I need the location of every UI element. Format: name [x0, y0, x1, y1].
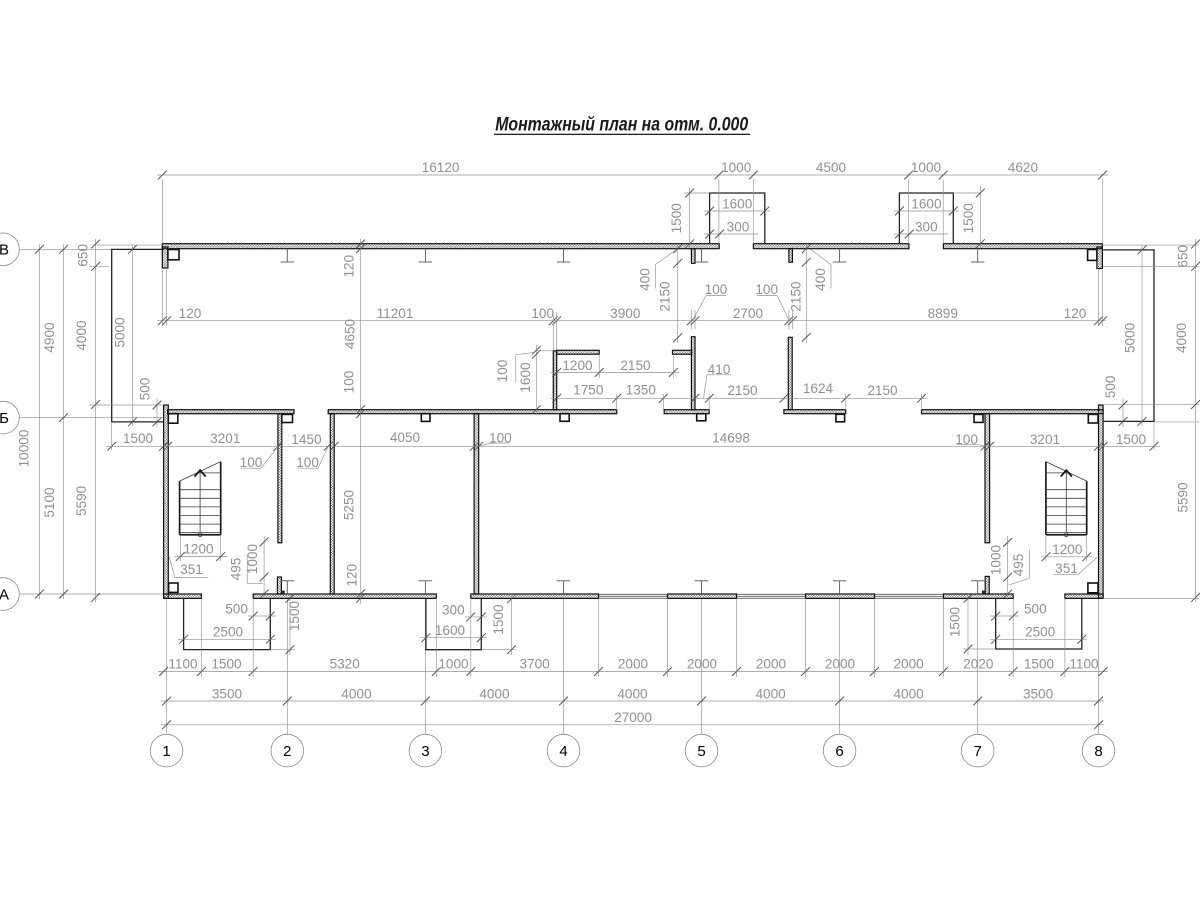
svg-text:1500: 1500	[491, 604, 506, 635]
svg-text:2500: 2500	[1025, 625, 1056, 640]
svg-text:500: 500	[1024, 602, 1047, 617]
svg-text:4050: 4050	[390, 430, 421, 445]
svg-text:4000: 4000	[74, 320, 89, 351]
svg-text:500: 500	[1103, 375, 1118, 398]
svg-text:5100: 5100	[42, 487, 57, 518]
svg-text:1750: 1750	[573, 383, 604, 398]
svg-text:3201: 3201	[1030, 432, 1060, 447]
svg-text:4000: 4000	[617, 686, 648, 701]
svg-text:100: 100	[296, 455, 319, 470]
svg-text:4000: 4000	[1174, 322, 1189, 353]
svg-text:3900: 3900	[610, 306, 641, 321]
svg-text:351: 351	[180, 562, 203, 577]
svg-text:120: 120	[1064, 306, 1087, 321]
svg-text:1200: 1200	[183, 542, 214, 557]
svg-text:1000: 1000	[721, 160, 752, 175]
svg-text:2150: 2150	[867, 383, 898, 398]
svg-text:1500: 1500	[1116, 432, 1147, 447]
svg-text:1000: 1000	[438, 657, 469, 672]
svg-text:2150: 2150	[620, 358, 651, 373]
svg-text:5000: 5000	[112, 317, 127, 348]
svg-text:2000: 2000	[893, 657, 924, 672]
svg-text:300: 300	[442, 603, 465, 618]
svg-text:351: 351	[1055, 561, 1078, 576]
svg-text:1600: 1600	[435, 623, 466, 638]
svg-text:3500: 3500	[1023, 686, 1054, 701]
svg-text:1500: 1500	[1024, 657, 1055, 672]
svg-text:1624: 1624	[803, 381, 834, 396]
svg-text:7: 7	[974, 743, 982, 760]
svg-text:А: А	[0, 586, 9, 603]
svg-text:1500: 1500	[123, 431, 154, 446]
svg-text:5000: 5000	[1122, 322, 1137, 353]
svg-text:Монтажный план на отм. 0.000: Монтажный план на отм. 0.000	[495, 115, 748, 136]
svg-text:100: 100	[531, 306, 554, 321]
svg-text:8: 8	[1094, 743, 1102, 760]
svg-text:1000: 1000	[911, 160, 942, 175]
svg-text:1600: 1600	[518, 362, 533, 393]
svg-text:400: 400	[813, 268, 828, 291]
svg-text:1500: 1500	[211, 657, 242, 672]
svg-text:500: 500	[225, 602, 248, 617]
svg-text:4000: 4000	[755, 686, 786, 701]
svg-text:2000: 2000	[756, 657, 787, 672]
svg-text:1: 1	[162, 743, 170, 760]
svg-text:1450: 1450	[291, 432, 322, 447]
svg-text:120: 120	[179, 306, 202, 321]
svg-text:100: 100	[240, 455, 263, 470]
svg-text:6: 6	[835, 743, 843, 760]
svg-text:4000: 4000	[479, 686, 510, 701]
svg-text:1600: 1600	[911, 197, 942, 212]
svg-text:2000: 2000	[687, 657, 718, 672]
svg-text:2700: 2700	[733, 306, 764, 321]
svg-text:120: 120	[345, 563, 360, 586]
svg-text:5: 5	[697, 743, 705, 760]
svg-text:2150: 2150	[658, 281, 673, 312]
svg-text:650: 650	[1176, 245, 1191, 268]
svg-text:Б: Б	[0, 410, 9, 427]
svg-text:4000: 4000	[341, 686, 372, 701]
svg-text:1600: 1600	[722, 197, 753, 212]
svg-text:1500: 1500	[287, 600, 302, 631]
svg-text:4900: 4900	[42, 322, 57, 353]
svg-text:1000: 1000	[989, 544, 1004, 575]
svg-text:1500: 1500	[948, 606, 963, 637]
svg-text:100: 100	[705, 282, 728, 297]
svg-text:14698: 14698	[712, 431, 750, 446]
svg-text:1350: 1350	[626, 383, 657, 398]
svg-text:1500: 1500	[961, 203, 976, 234]
svg-text:4: 4	[559, 743, 567, 760]
svg-text:11201: 11201	[377, 306, 414, 321]
svg-text:27000: 27000	[614, 710, 652, 725]
svg-text:4620: 4620	[1008, 160, 1039, 175]
svg-text:4500: 4500	[816, 160, 847, 175]
svg-text:10000: 10000	[17, 429, 32, 467]
svg-text:1100: 1100	[1069, 657, 1099, 672]
svg-text:2150: 2150	[789, 281, 804, 312]
svg-text:1200: 1200	[562, 358, 593, 373]
svg-text:2020: 2020	[963, 657, 994, 672]
svg-text:2: 2	[283, 743, 291, 760]
svg-text:500: 500	[138, 377, 153, 400]
svg-text:8899: 8899	[928, 306, 958, 321]
svg-text:3: 3	[421, 743, 429, 760]
svg-text:1500: 1500	[669, 203, 684, 234]
svg-text:5590: 5590	[74, 485, 89, 516]
svg-text:300: 300	[915, 220, 938, 235]
svg-text:2000: 2000	[825, 657, 856, 672]
svg-text:100: 100	[342, 370, 357, 393]
svg-text:4000: 4000	[893, 686, 924, 701]
svg-text:120: 120	[342, 254, 357, 277]
svg-text:3700: 3700	[519, 657, 550, 672]
svg-text:5320: 5320	[330, 657, 361, 672]
svg-text:3500: 3500	[212, 686, 243, 701]
svg-text:1200: 1200	[1052, 542, 1083, 557]
svg-text:1100: 1100	[168, 657, 198, 672]
svg-text:2500: 2500	[213, 625, 244, 640]
svg-text:100: 100	[495, 359, 510, 382]
svg-text:2000: 2000	[618, 657, 649, 672]
svg-text:4650: 4650	[343, 318, 358, 349]
svg-text:В: В	[0, 242, 9, 259]
svg-text:100: 100	[755, 282, 778, 297]
svg-text:300: 300	[727, 220, 750, 235]
svg-text:5250: 5250	[342, 489, 357, 520]
svg-text:3201: 3201	[210, 431, 240, 446]
svg-text:650: 650	[76, 244, 91, 267]
svg-text:16120: 16120	[422, 160, 460, 175]
svg-text:5590: 5590	[1176, 482, 1191, 513]
svg-text:400: 400	[638, 268, 653, 291]
svg-text:495: 495	[229, 558, 244, 581]
svg-text:2150: 2150	[727, 383, 758, 398]
svg-text:495: 495	[1011, 554, 1026, 577]
